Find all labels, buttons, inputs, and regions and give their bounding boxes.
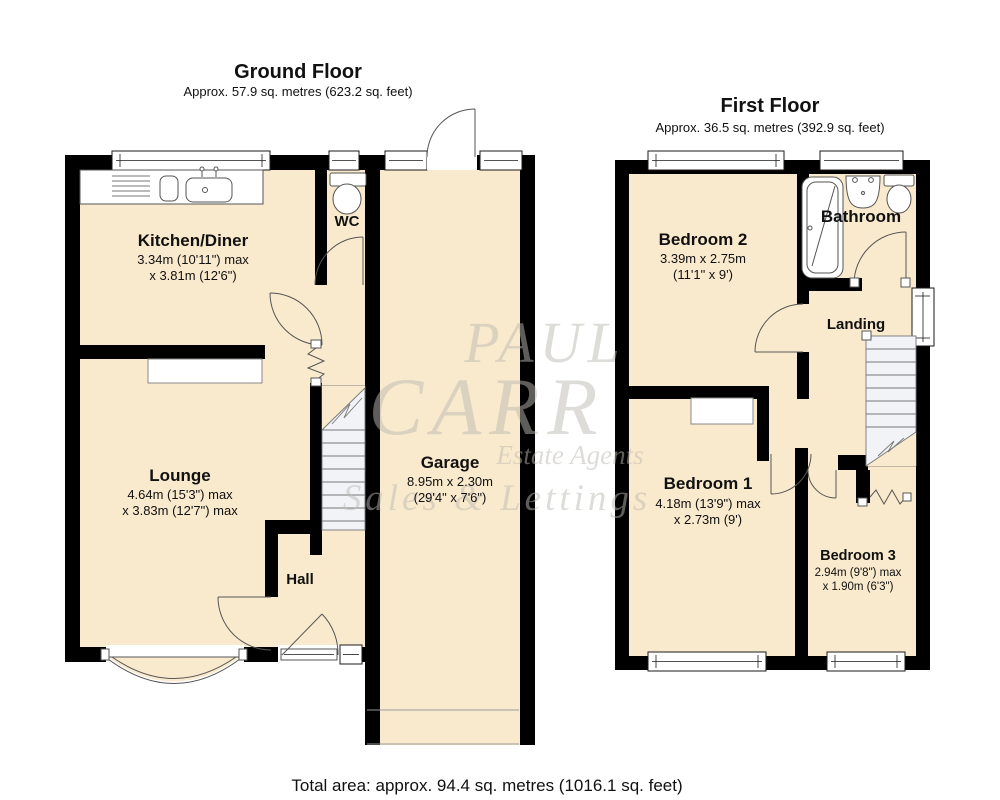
- floorplan-svg: PAUL CARR Estate Agents Sales & Lettings…: [0, 0, 1000, 800]
- label-garage-dim1: 8.95m x 2.30m: [407, 474, 493, 489]
- label-bedroom3-name: Bedroom 3: [820, 548, 896, 564]
- label-bedroom2-name: Bedroom 2: [659, 230, 748, 249]
- window-bedroom3: [827, 652, 905, 671]
- label-bedroom3-dim2: x 1.90m (6'3"): [823, 581, 894, 593]
- window-bedroom2: [648, 151, 784, 170]
- label-bedroom3-dim1: 2.94m (9'8") max: [815, 567, 902, 579]
- watermark-line4: Sales & Lettings: [343, 478, 652, 519]
- gf-wall-kitchen-bottom: [65, 345, 265, 359]
- label-lounge-dim1: 4.64m (15'3") max: [127, 487, 233, 502]
- sink-icon: [846, 176, 880, 208]
- gf-wall-hall-lounge: [265, 534, 278, 597]
- door-garage-top: [427, 109, 477, 170]
- gf-wall-under-stairs: [265, 520, 322, 534]
- window-front-sidelight: [340, 645, 362, 664]
- label-kitchen-name: Kitchen/Diner: [138, 231, 249, 250]
- ff-wall-bed2-right-upper: [797, 280, 809, 304]
- gf-chimney-breast: [148, 359, 262, 383]
- ground-floor-subtitle: Approx. 57.9 sq. metres (623.2 sq. feet): [183, 84, 412, 99]
- window-wc: [329, 151, 359, 170]
- label-kitchen-dim1: 3.34m (10'11") max: [137, 252, 249, 267]
- label-wc: WC: [335, 213, 360, 230]
- ff-wall-bed1-top: [757, 448, 769, 461]
- ground-floor-title: Ground Floor: [234, 61, 362, 83]
- label-garage-dim2: (29'4" x 7'6"): [414, 490, 487, 505]
- ff-wall-right: [916, 160, 930, 670]
- first-floor-subtitle: Approx. 36.5 sq. metres (392.9 sq. feet): [655, 120, 884, 135]
- label-lounge-name: Lounge: [149, 466, 210, 485]
- label-bedroom1-name: Bedroom 1: [664, 474, 753, 493]
- ff-wall-bed2-bottom: [629, 386, 769, 399]
- kitchen-sink-icon: [80, 167, 263, 204]
- label-kitchen-dim2: x 3.81m (12'6"): [149, 268, 236, 283]
- floorplan-page: PAUL CARR Estate Agents Sales & Lettings…: [0, 0, 1000, 800]
- total-area-text: Total area: approx. 94.4 sq. metres (101…: [291, 776, 682, 795]
- label-hall: Hall: [286, 571, 314, 588]
- label-bedroom2-dim1: 3.39m x 2.75m: [660, 251, 746, 266]
- window-garage-2: [480, 151, 522, 170]
- label-bathroom: Bathroom: [821, 207, 901, 226]
- window-kitchen: [112, 151, 270, 170]
- gf-wall-wc-left: [315, 169, 327, 285]
- ff-stairs: [862, 331, 916, 466]
- label-bedroom1-dim2: x 2.73m (9'): [674, 512, 742, 527]
- first-floor-title: First Floor: [721, 95, 820, 117]
- bay-window: [101, 645, 247, 684]
- window-garage-1: [385, 151, 427, 170]
- ff-wall-stairs-bottom: [838, 455, 868, 470]
- label-garage-name: Garage: [421, 453, 480, 472]
- ff-wall-bed2-right-lower: [797, 352, 809, 399]
- window-bathroom: [820, 151, 903, 170]
- bathtub-icon: [802, 177, 843, 278]
- watermark-line3: Estate Agents: [495, 440, 643, 470]
- gf-wall-left: [65, 155, 80, 662]
- label-bedroom2-dim2: (11'1" x 9'): [673, 267, 733, 282]
- watermark-line2: CARR: [369, 361, 606, 452]
- window-bedroom1: [648, 652, 766, 671]
- ff-wall-landing-left: [757, 386, 769, 448]
- ff-wall-left: [615, 160, 629, 670]
- ff-chimney-breast: [691, 398, 753, 424]
- label-bedroom1-dim1: 4.18m (13'9") max: [655, 496, 761, 511]
- label-lounge-dim2: x 3.83m (12'7") max: [122, 503, 238, 518]
- label-landing: Landing: [827, 316, 885, 333]
